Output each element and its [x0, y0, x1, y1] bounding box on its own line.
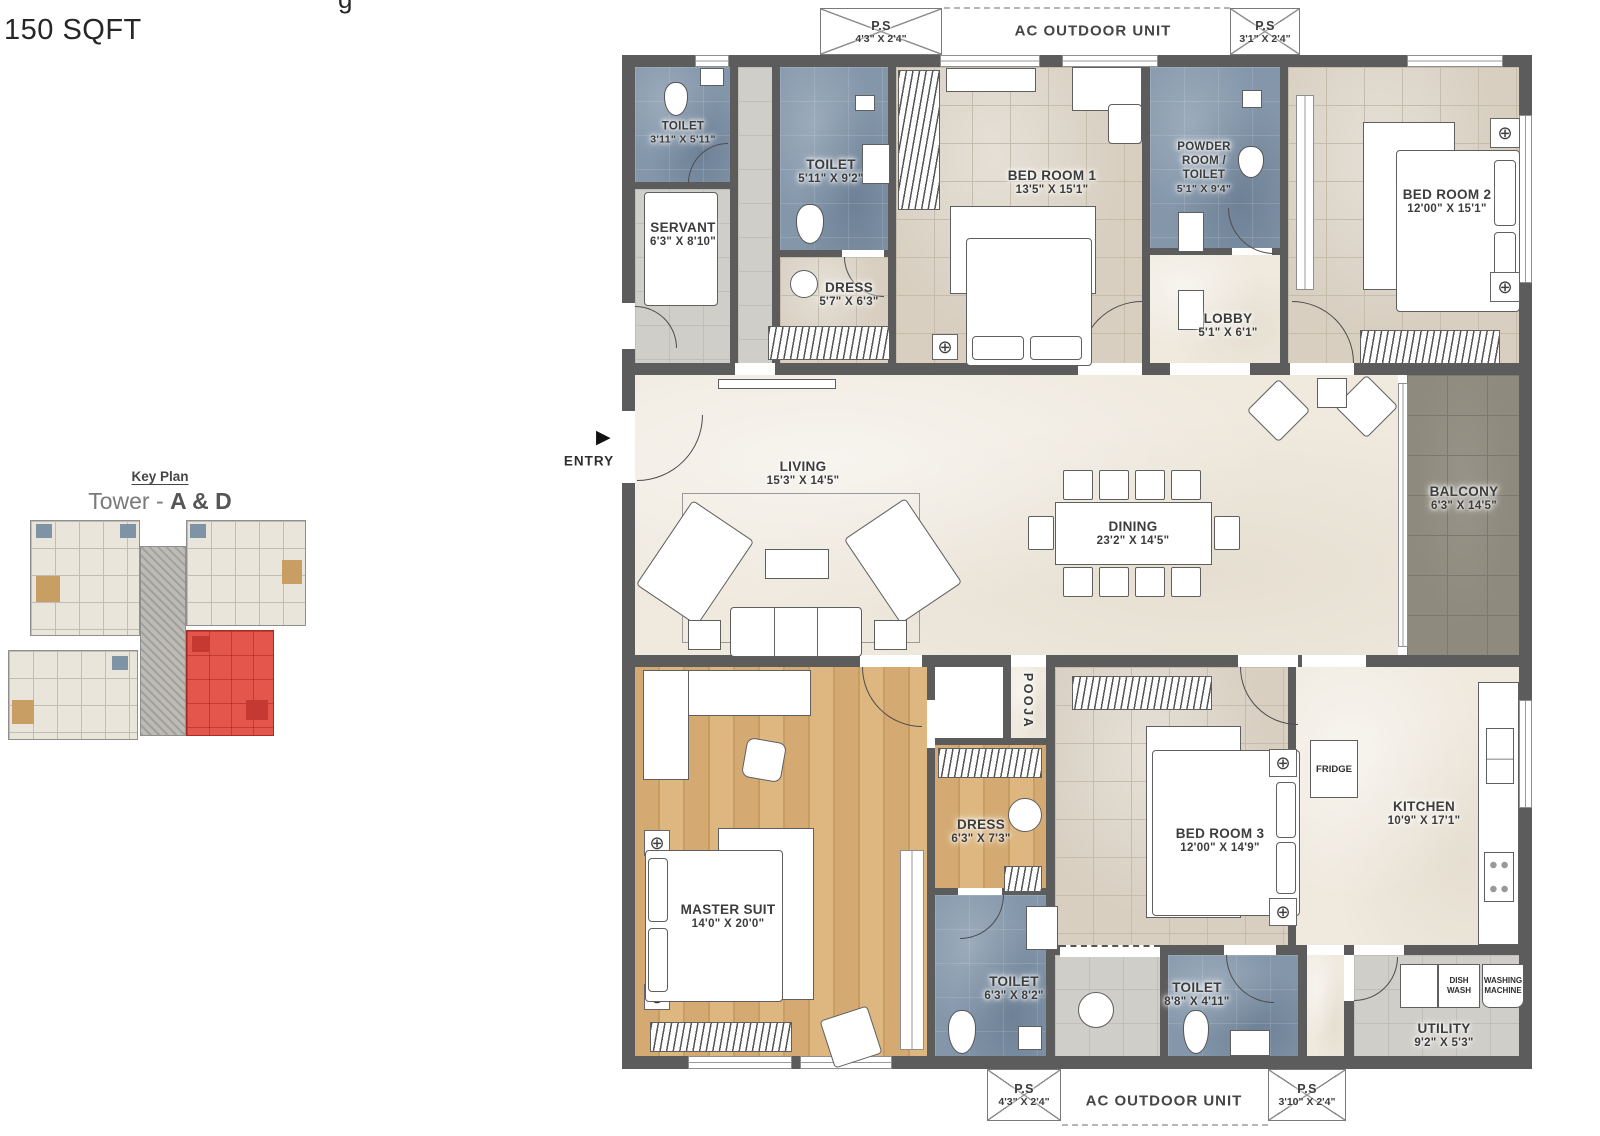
ac-outdoor-unit-label-bottom: AC OUTDOOR UNIT [1086, 1093, 1243, 1110]
ps-box-top-right: P.S3'1" X 2'4" [1230, 8, 1300, 55]
room-dims: 23'2" X 14'5" [1097, 535, 1170, 547]
room-name: POOJA [1021, 673, 1035, 729]
keyplan-patch [246, 700, 268, 720]
room-dims: 5'1" X 9'4" [1166, 183, 1242, 196]
wall-segment [1142, 67, 1150, 363]
mirror-strip [1296, 95, 1314, 290]
ps-label: P.S [871, 19, 890, 33]
room-dims: 15'3" X 14'5" [767, 475, 840, 487]
room-label-pooja: POOJA [1021, 673, 1035, 729]
room-label-lobby: LOBBY5'1" X 6'1" [1198, 311, 1257, 339]
dish-wash-label: DISH WASH [1438, 964, 1480, 1008]
room-dims: 9'2" X 5'3" [1414, 1037, 1473, 1049]
room-name: BED ROOM 2 [1403, 187, 1492, 202]
sofa-icon [643, 670, 689, 780]
wall-segment [1404, 945, 1532, 955]
door-opening [842, 250, 884, 257]
fan-icon: ⊕ [1269, 898, 1297, 926]
room-dims: 12'00" X 14'9" [1176, 842, 1265, 854]
console-shelf [718, 379, 836, 389]
window [1062, 55, 1158, 67]
floor-lobby [1150, 255, 1280, 363]
sofa-seat-divider [817, 608, 818, 656]
keyplan-patch [192, 636, 210, 652]
room-name: TOILET [1164, 980, 1229, 995]
room-label-master-suit: MASTER SUIT14'0" X 20'0" [681, 902, 776, 930]
room-dims: 6'3" X 14'5" [1430, 500, 1499, 512]
pillow [1494, 160, 1516, 226]
dining-chair [1063, 470, 1093, 500]
wall-segment [622, 55, 635, 411]
floorplan-page: g 150 SQFT Key Plan Tower - A & D [0, 0, 1600, 1136]
door-opening [860, 655, 922, 667]
door-opening [1290, 363, 1354, 375]
balcony-slider-window [1398, 383, 1408, 647]
room-dims: 5'7" X 6'3" [819, 296, 878, 308]
keyplan-patch [190, 524, 206, 538]
keyplan-patch [120, 524, 136, 538]
wardrobe-hatch [898, 70, 940, 210]
ac-outdoor-unit-label-top: AC OUTDOOR UNIT [1015, 23, 1172, 40]
pillow [1276, 782, 1296, 838]
room-name: DRESS [951, 817, 1010, 832]
room-label-dining: DINING23'2" X 14'5" [1097, 519, 1170, 547]
key-plan-subtitle: Tower - A & D [28, 488, 292, 515]
room-label-toilet-bed3: TOILET8'8" X 4'11" [1164, 980, 1229, 1008]
wardrobe-hatch [1072, 676, 1212, 710]
coffee-table [765, 549, 829, 579]
dining-chair [1028, 516, 1054, 550]
room-label-powder-room: POWDER ROOM / TOILET5'1" X 9'4" [1166, 140, 1242, 196]
dining-chair [1171, 567, 1201, 597]
wardrobe-hatch [1004, 866, 1042, 892]
floor-kitchen-passage [1307, 955, 1344, 1056]
wall-segment [1046, 655, 1055, 1056]
room-name: DINING [1097, 519, 1170, 534]
keyplan-patch [36, 524, 52, 538]
room-name: SERVANT [650, 220, 716, 235]
door-opening [1011, 655, 1046, 667]
keyplan-patch [12, 700, 34, 724]
sofa-seat-divider [774, 608, 775, 656]
fan-glyph: ⊕ [1275, 754, 1290, 772]
ps-dims: 4'3" X 2'4" [855, 33, 906, 45]
keyplan-patch [36, 576, 60, 602]
keyplan-patch [282, 560, 302, 584]
door-opening [622, 303, 635, 349]
window [1519, 700, 1532, 808]
dining-chair [1135, 567, 1165, 597]
window [1519, 115, 1532, 283]
fan-glyph: ⊕ [937, 338, 952, 356]
wall-segment [1280, 67, 1288, 363]
room-label-living: LIVING15'3" X 14'5" [767, 459, 840, 487]
window [695, 55, 729, 67]
wall-segment [772, 67, 780, 363]
basin-icon [1026, 906, 1058, 950]
dining-chair [1063, 567, 1093, 597]
dining-chair [1171, 470, 1201, 500]
clipped-header-fragment: g [338, 0, 352, 15]
room-name: BALCONY [1430, 484, 1499, 499]
side-table [1317, 378, 1347, 408]
wardrobe-hatch [650, 1022, 792, 1052]
ps-label: P.S [1297, 1082, 1316, 1096]
room-dims: 8'8" X 4'11" [1164, 996, 1229, 1008]
wall-segment [935, 738, 1055, 745]
keyplan-patch [112, 656, 128, 670]
wall-segment [635, 182, 730, 189]
room-label-dress-1: DRESS5'7" X 6'3" [819, 280, 878, 308]
fan-icon: ⊕ [932, 334, 958, 360]
door-opening [1170, 363, 1250, 375]
dining-chair [1099, 567, 1129, 597]
key-plan-tower-prefix: Tower - [88, 488, 170, 514]
dining-chair [1135, 470, 1165, 500]
door-opening [958, 888, 1002, 895]
kitchen-counter [1478, 682, 1519, 945]
basin-icon [700, 68, 724, 86]
room-name: POWDER ROOM / TOILET [1166, 140, 1242, 182]
wall-segment [1298, 955, 1307, 1056]
room-label-bedroom-1: BED ROOM 113'5" X 15'1" [1008, 168, 1097, 196]
wardrobe-hatch [768, 326, 890, 360]
room-label-balcony: BALCONY6'3" X 14'5" [1430, 484, 1499, 512]
window [940, 55, 1040, 67]
door-opening [735, 363, 775, 375]
room-label-toilet-servant: TOILET3'11" X 5'11" [650, 121, 716, 146]
wall-segment [1003, 655, 1011, 745]
dining-chair [1099, 470, 1129, 500]
room-label-servant: SERVANT6'3" X 8'10" [650, 220, 716, 248]
door-opening [1354, 945, 1404, 955]
shower-threshold [1060, 945, 1160, 957]
wall-segment [888, 67, 896, 363]
mirror-icon [790, 270, 818, 298]
service-dash-line [1062, 1124, 1268, 1126]
room-label-toilet-common: TOILET5'11" X 9'2" [798, 157, 863, 185]
basin-icon [1230, 1030, 1270, 1056]
ottoman-icon [741, 737, 787, 783]
washing-machine-label: WASHING MACHINE [1482, 964, 1524, 1008]
room-dims: 6'3" X 7'3" [951, 833, 1010, 845]
fan-glyph: ⊕ [1275, 903, 1290, 921]
fan-icon: ⊕ [1490, 118, 1520, 148]
pillow [1276, 842, 1296, 894]
room-name: BED ROOM 1 [1008, 168, 1097, 183]
servant-bed-icon [644, 192, 718, 306]
basin-icon [855, 95, 875, 111]
wardrobe-hatch [938, 748, 1042, 778]
room-dims: 6'3" X 8'2" [984, 990, 1043, 1002]
wall-segment [730, 67, 738, 363]
room-label-bedroom-2: BED ROOM 212'00" X 15'1" [1403, 187, 1492, 215]
side-table [688, 620, 721, 650]
sliding-wardrobe [900, 850, 924, 1050]
wall-segment [1276, 945, 1307, 955]
door-opening [927, 700, 935, 748]
wall-segment [622, 483, 635, 1069]
fridge-label: FRIDGE [1310, 740, 1358, 798]
door-opening [1224, 945, 1276, 955]
side-table [874, 620, 907, 650]
wash-basin-icon [1078, 992, 1114, 1028]
cabinet-icon [1178, 212, 1204, 252]
utility-counter [1400, 964, 1438, 1008]
room-name: LIVING [767, 459, 840, 474]
room-dims: 12'00" X 15'1" [1403, 203, 1492, 215]
room-name: TOILET [984, 974, 1043, 989]
room-name: DRESS [819, 280, 878, 295]
room-label-utility: UTILITY9'2" X 5'3" [1414, 1021, 1473, 1049]
key-plan-tower-name: A & D [170, 488, 232, 514]
sofa-icon [730, 607, 862, 657]
room-name: KITCHEN [1388, 799, 1461, 814]
fan-glyph: ⊕ [1497, 278, 1512, 296]
chair-icon [1108, 104, 1142, 144]
floor-balcony [1407, 375, 1519, 655]
wardrobe-hatch [1360, 330, 1500, 364]
pillow [972, 336, 1024, 360]
room-dims: 6'3" X 8'10" [650, 236, 716, 248]
ps-dims: 4'3" X 2'4" [998, 1096, 1049, 1108]
entry-label: ENTRY [564, 454, 614, 469]
room-dims: 14'0" X 20'0" [681, 918, 776, 930]
wall-segment [1344, 945, 1354, 955]
room-dims: 5'1" X 6'1" [1198, 327, 1257, 339]
fan-icon: ⊕ [1269, 749, 1297, 777]
window [688, 1056, 792, 1069]
wall-segment [1344, 1001, 1354, 1056]
pillow [648, 928, 668, 992]
ps-label: P.S [1014, 1082, 1033, 1096]
ps-dims: 3'10" X 2'4" [1279, 1096, 1336, 1108]
room-label-toilet-master: TOILET6'3" X 8'2" [984, 974, 1043, 1002]
room-name: TOILET [650, 121, 716, 133]
room-name: UTILITY [1414, 1021, 1473, 1036]
mirror-icon [1008, 798, 1042, 832]
fan-icon: ⊕ [1490, 272, 1520, 302]
room-dims: 3'11" X 5'11" [650, 134, 716, 146]
entry-door-opening [622, 411, 635, 483]
shower-icon [862, 144, 890, 184]
ps-box-top-left: P.S4'3" X 2'4" [820, 8, 942, 55]
room-label-dress-2: DRESS6'3" X 7'3" [951, 817, 1010, 845]
room-dims: 10'9" X 17'1" [1388, 815, 1461, 827]
sink-icon [1486, 728, 1514, 784]
ps-box-bottom-right: P.S3'10" X 2'4" [1268, 1069, 1346, 1121]
ps-dims: 3'1" X 2'4" [1239, 33, 1290, 45]
room-name: TOILET [798, 157, 863, 172]
area-text: 150 SQFT [4, 14, 142, 47]
room-dims: 5'11" X 9'2" [798, 173, 863, 185]
room-label-bedroom-3: BED ROOM 312'00" X 14'9" [1176, 826, 1265, 854]
room-name: MASTER SUIT [681, 902, 776, 917]
room-name: LOBBY [1198, 311, 1257, 326]
fan-glyph: ⊕ [1497, 124, 1512, 142]
keyplan-core [140, 546, 186, 736]
pillow [1030, 336, 1082, 360]
service-dash-line [944, 7, 1230, 9]
door-opening [1302, 655, 1366, 667]
key-plan-title: Key Plan [95, 469, 225, 484]
room-label-kitchen: KITCHEN10'9" X 17'1" [1388, 799, 1461, 827]
ps-box-bottom-left: P.S4'3" X 2'4" [987, 1069, 1061, 1121]
wall-segment [1160, 945, 1224, 955]
window [1407, 55, 1503, 67]
dresser-icon [946, 68, 1036, 92]
pillow [648, 858, 668, 922]
door-opening [1238, 655, 1298, 667]
hob-icon [1484, 852, 1514, 902]
ps-label: P.S [1255, 19, 1274, 33]
room-dims: 13'5" X 15'1" [1008, 184, 1097, 196]
basin-icon [1242, 90, 1262, 108]
floor-service-corridor [738, 67, 772, 363]
room-name: BED ROOM 3 [1176, 826, 1265, 841]
entry-arrow-icon: ▶ [596, 428, 611, 447]
dining-chair [1214, 516, 1240, 550]
shower-icon [1018, 1026, 1042, 1050]
